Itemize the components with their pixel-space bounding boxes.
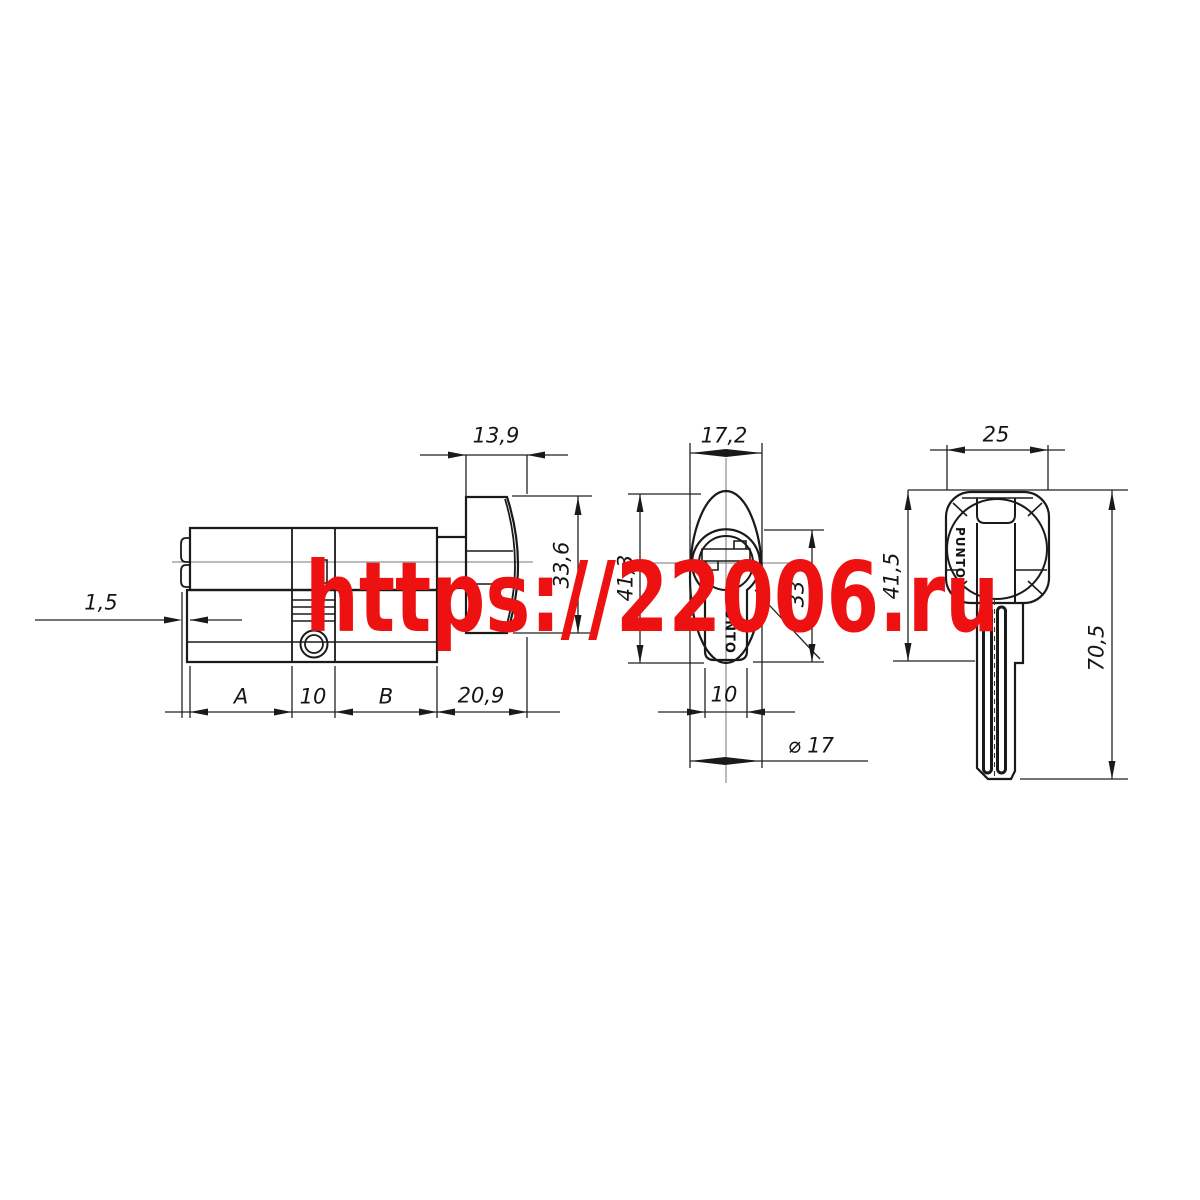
dim-label-section-b: B	[379, 687, 393, 708]
technical-drawing-page: 13,9 33,6 1,5 A 10 B 20,9 17,2 41,3 33 1…	[0, 0, 1200, 1200]
dim-label-cam-width: 10	[300, 687, 327, 708]
dim-label-plug-protrusion: 1,5	[84, 593, 117, 614]
dim-label-key-head-width: 25	[983, 425, 1010, 446]
site-watermark: https://22006.ru	[305, 549, 999, 646]
dim-label-stem-width: 10	[711, 685, 738, 706]
dim-label-key-total-length: 70,5	[1087, 625, 1108, 672]
dim-label-knob-length: 20,9	[458, 686, 505, 707]
dim-label-section-a: A	[234, 687, 248, 708]
dim-label-plug-diameter: ⌀ 17	[788, 736, 834, 757]
dim-label-knob-width: 13,9	[473, 426, 520, 447]
dim-label-knob-face-width: 17,2	[701, 426, 748, 447]
